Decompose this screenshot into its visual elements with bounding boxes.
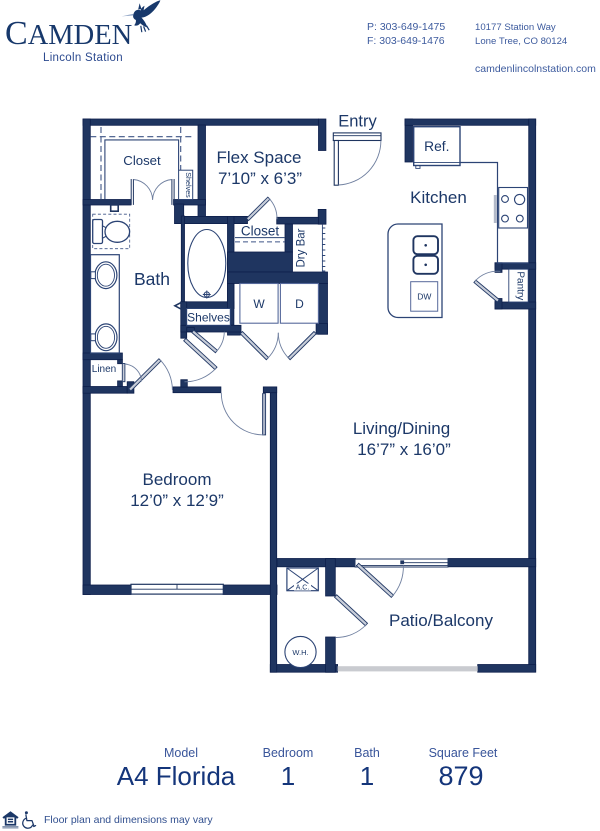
- svg-text:W.H.: W.H.: [292, 648, 308, 657]
- svg-text:Patio/Balcony: Patio/Balcony: [389, 611, 493, 630]
- svg-text:Closet: Closet: [241, 224, 280, 239]
- svg-text:W: W: [253, 297, 265, 311]
- svg-text:Shelves: Shelves: [187, 311, 230, 325]
- svg-text:Flex Space: Flex Space: [216, 148, 301, 167]
- svg-text:DW: DW: [417, 292, 431, 302]
- svg-text:Entry: Entry: [338, 113, 377, 131]
- svg-text:Pantry: Pantry: [515, 271, 526, 300]
- svg-text:D: D: [295, 297, 304, 311]
- svg-text:Living/Dining: Living/Dining: [353, 419, 450, 438]
- svg-text:12’0” x 12’9”: 12’0” x 12’9”: [130, 491, 224, 510]
- svg-text:Bedroom: Bedroom: [143, 470, 212, 489]
- svg-text:Ref.: Ref.: [424, 139, 449, 154]
- svg-text:Shelves: Shelves: [184, 172, 193, 198]
- svg-text:Bath: Bath: [134, 269, 170, 289]
- svg-text:A.C.: A.C.: [296, 585, 310, 592]
- svg-text:Kitchen: Kitchen: [410, 188, 467, 207]
- svg-text:16’7” x 16’0”: 16’7” x 16’0”: [357, 440, 451, 459]
- svg-text:Linen: Linen: [92, 364, 116, 375]
- svg-text:7’10” x 6’3”: 7’10” x 6’3”: [218, 169, 302, 188]
- svg-text:Closet: Closet: [123, 153, 161, 168]
- svg-text:Dry Bar: Dry Bar: [296, 228, 308, 267]
